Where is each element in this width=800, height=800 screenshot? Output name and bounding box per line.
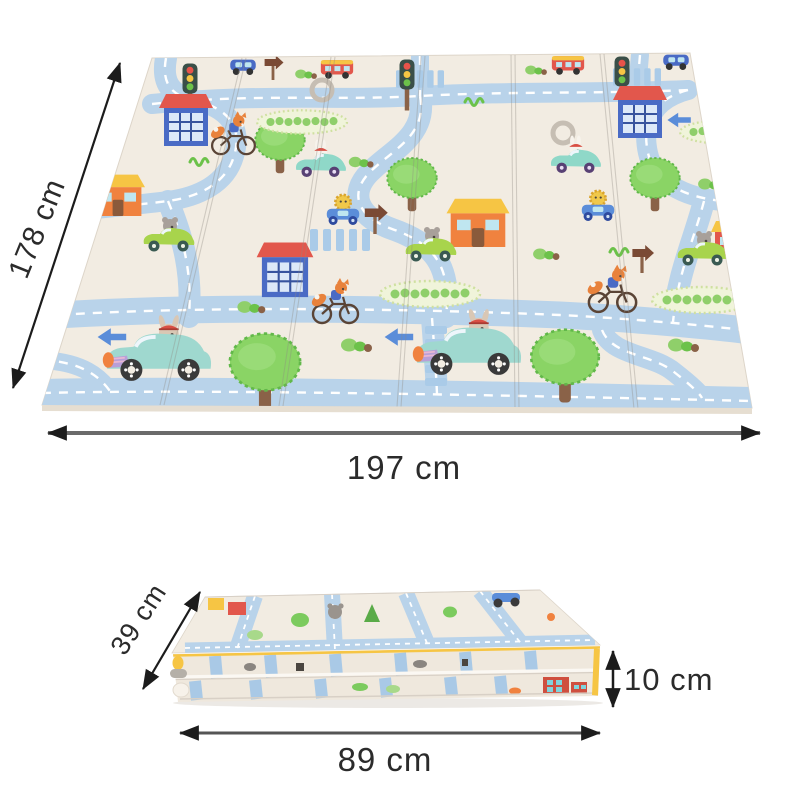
product-dimension-diagram: 178 cm 197 cm 39 cm 10 cm 89 cm xyxy=(0,0,800,800)
folded-depth-label: 39 cm xyxy=(104,578,172,660)
hedge xyxy=(257,110,347,133)
unfolded-mat xyxy=(42,53,770,414)
folded-left-cap xyxy=(173,656,184,670)
folded-width-label: 89 cm xyxy=(338,741,433,778)
unfolded-height-label: 178 cm xyxy=(2,174,72,283)
diagram-canvas: 178 cm 197 cm 39 cm 10 cm 89 cm xyxy=(0,0,800,800)
hedge xyxy=(652,287,752,313)
blue-house xyxy=(159,94,213,146)
hedge xyxy=(680,120,770,143)
orange-house xyxy=(91,175,145,216)
blue-house xyxy=(257,243,314,298)
folded-thickness-label: 10 cm xyxy=(624,662,713,697)
folded-mat xyxy=(170,590,604,708)
orange-house xyxy=(447,199,510,247)
blue-house xyxy=(613,86,667,138)
hedge xyxy=(380,281,480,307)
unfolded-width-label: 197 cm xyxy=(347,449,461,486)
